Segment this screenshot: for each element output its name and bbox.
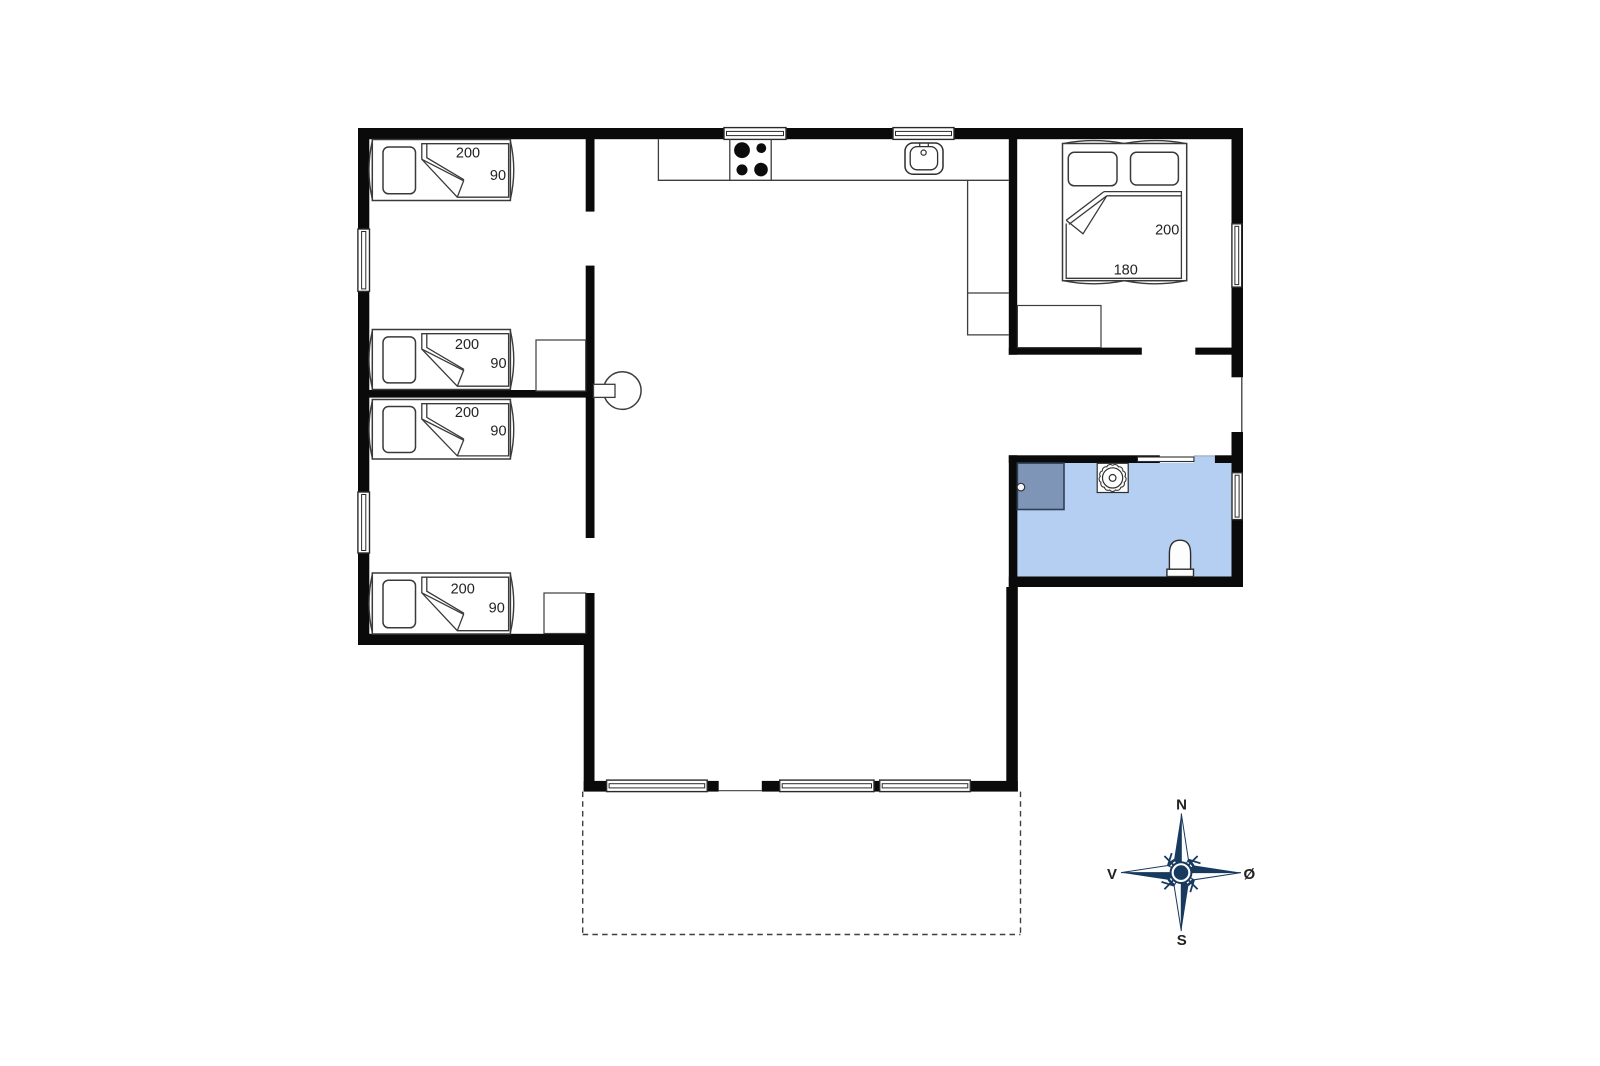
svg-text:90: 90 (490, 424, 506, 440)
svg-text:V: V (1107, 866, 1117, 883)
svg-text:90: 90 (490, 168, 506, 184)
svg-text:200: 200 (451, 581, 475, 597)
svg-text:90: 90 (490, 356, 506, 372)
svg-text:N: N (1176, 797, 1187, 814)
svg-text:180: 180 (1114, 263, 1138, 279)
svg-text:200: 200 (1155, 223, 1179, 239)
svg-text:S: S (1177, 932, 1187, 949)
svg-text:200: 200 (455, 405, 479, 421)
svg-text:200: 200 (456, 146, 480, 162)
svg-text:90: 90 (489, 600, 505, 616)
svg-text:Ø: Ø (1243, 866, 1255, 883)
svg-text:200: 200 (455, 337, 479, 353)
